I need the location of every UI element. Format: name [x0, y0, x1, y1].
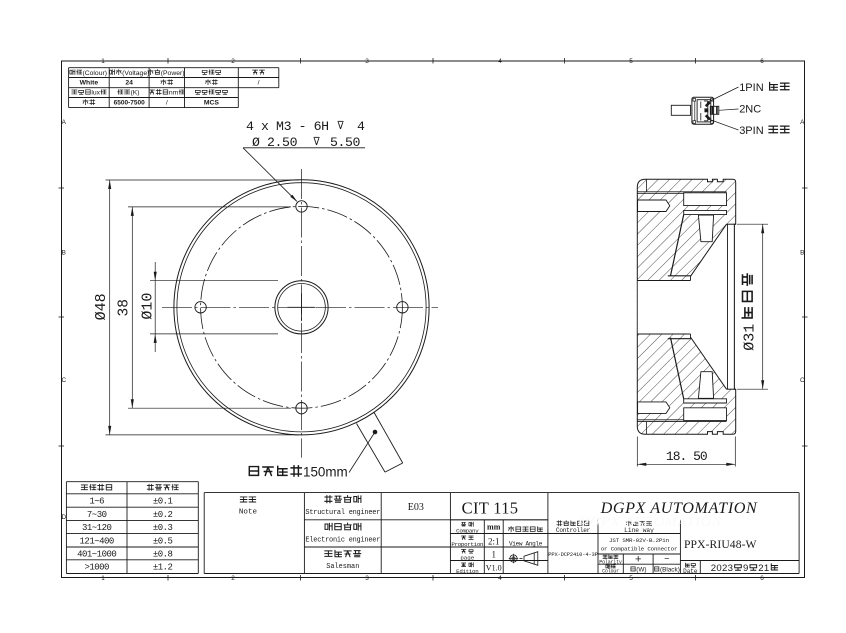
svg-text:3: 3: [365, 58, 369, 65]
svg-text:4: 4: [357, 119, 365, 134]
svg-text:/: /: [258, 80, 260, 87]
svg-text:(Colour): (Colour): [82, 70, 107, 77]
svg-text:1: 1: [101, 58, 105, 65]
svg-text:Ø31: Ø31: [742, 324, 759, 351]
svg-text:±1.2: ±1.2: [153, 563, 173, 573]
svg-text:Note: Note: [239, 509, 258, 517]
svg-text:C: C: [61, 377, 66, 384]
svg-text:Colour: Colour: [602, 569, 619, 575]
svg-text:−: −: [664, 554, 669, 564]
svg-text:21: 21: [758, 563, 769, 574]
svg-text:150mm: 150mm: [303, 465, 348, 480]
svg-text:Electronic engineer: Electronic engineer: [305, 537, 380, 545]
svg-text:2023: 2023: [711, 563, 734, 574]
svg-text:(K): (K): [130, 90, 139, 97]
svg-text:(Black): (Black): [660, 567, 680, 574]
svg-text:lux: lux: [91, 90, 100, 97]
svg-text:(Power): (Power): [161, 70, 185, 77]
svg-text:MCS: MCS: [204, 100, 220, 107]
svg-text:2: 2: [231, 58, 235, 65]
svg-text:2: 2: [231, 575, 235, 582]
svg-text:Salesman: Salesman: [326, 563, 359, 571]
svg-text:A: A: [800, 119, 805, 126]
svg-text:Proportion: Proportion: [451, 541, 483, 548]
svg-text:121~400: 121~400: [80, 536, 114, 546]
svg-text:White: White: [80, 80, 99, 87]
svg-text:B: B: [800, 250, 804, 257]
svg-text:31~120: 31~120: [82, 523, 112, 533]
svg-text:4 x M3 - 6H: 4 x M3 - 6H: [246, 119, 329, 134]
svg-text:(W): (W): [636, 567, 646, 574]
svg-text:1: 1: [101, 575, 105, 582]
svg-text:CIT 115: CIT 115: [462, 499, 519, 518]
svg-text:Structural engineer: Structural engineer: [305, 509, 380, 517]
svg-text:±0.8: ±0.8: [153, 549, 173, 559]
svg-text:E03: E03: [408, 502, 424, 513]
svg-text:V1.0: V1.0: [486, 564, 502, 573]
svg-text:2NC: 2NC: [739, 104, 761, 116]
svg-text:6: 6: [760, 58, 764, 65]
svg-text:1~6: 1~6: [89, 497, 104, 507]
svg-text:>1000: >1000: [84, 563, 109, 573]
svg-text:Edition: Edition: [456, 568, 478, 575]
svg-text:±0.1: ±0.1: [153, 497, 173, 507]
svg-text:18. 50: 18. 50: [666, 449, 707, 464]
svg-text:Ø48: Ø48: [93, 293, 110, 320]
svg-text:5: 5: [629, 58, 633, 65]
svg-text:7~30: 7~30: [87, 510, 107, 520]
svg-text:+: +: [635, 554, 641, 566]
svg-text:401~1000: 401~1000: [77, 549, 116, 559]
svg-text:/: /: [166, 100, 168, 107]
svg-text:JST SMR-02V-B.2Pin: JST SMR-02V-B.2Pin: [609, 537, 669, 544]
svg-text:±0.5: ±0.5: [153, 536, 173, 546]
svg-text:(Voltage): (Voltage): [122, 70, 149, 77]
svg-text:4: 4: [498, 575, 502, 582]
svg-text:nm: nm: [169, 90, 179, 97]
svg-text:9: 9: [743, 563, 749, 574]
svg-text:DGPX AUTOMATION: DGPX AUTOMATION: [578, 515, 722, 530]
svg-text:B: B: [62, 250, 66, 257]
svg-text:PPX-RIU48-W: PPX-RIU48-W: [684, 538, 757, 551]
svg-text:PPX-DCP2410-4-3P: PPX-DCP2410-4-3P: [548, 552, 597, 558]
svg-text:3PIN: 3PIN: [739, 125, 764, 137]
svg-text:D: D: [61, 514, 66, 521]
svg-text:6500-7500: 6500-7500: [114, 100, 145, 107]
svg-text:±0.3: ±0.3: [153, 523, 173, 533]
svg-text:5: 5: [629, 575, 633, 582]
svg-text:C: C: [800, 377, 805, 384]
svg-text:38: 38: [117, 299, 133, 316]
svg-text:3: 3: [365, 575, 369, 582]
svg-text:View Angle: View Angle: [509, 541, 543, 548]
svg-text:1PIN: 1PIN: [739, 82, 764, 94]
svg-text:mm: mm: [487, 523, 501, 532]
svg-text:A: A: [62, 119, 67, 126]
svg-text:6: 6: [760, 575, 764, 582]
svg-text:page: page: [460, 555, 474, 562]
svg-text:2:1: 2:1: [488, 537, 500, 547]
svg-text:Company: Company: [456, 528, 479, 535]
svg-text:4: 4: [498, 58, 502, 65]
svg-text:24: 24: [125, 80, 133, 87]
svg-text:Date: Date: [683, 568, 698, 575]
svg-text:Ø10: Ø10: [139, 293, 156, 320]
svg-text:1: 1: [491, 550, 496, 560]
svg-text:or Compatible Connector: or Compatible Connector: [601, 546, 678, 553]
svg-text:±0.2: ±0.2: [153, 510, 173, 520]
